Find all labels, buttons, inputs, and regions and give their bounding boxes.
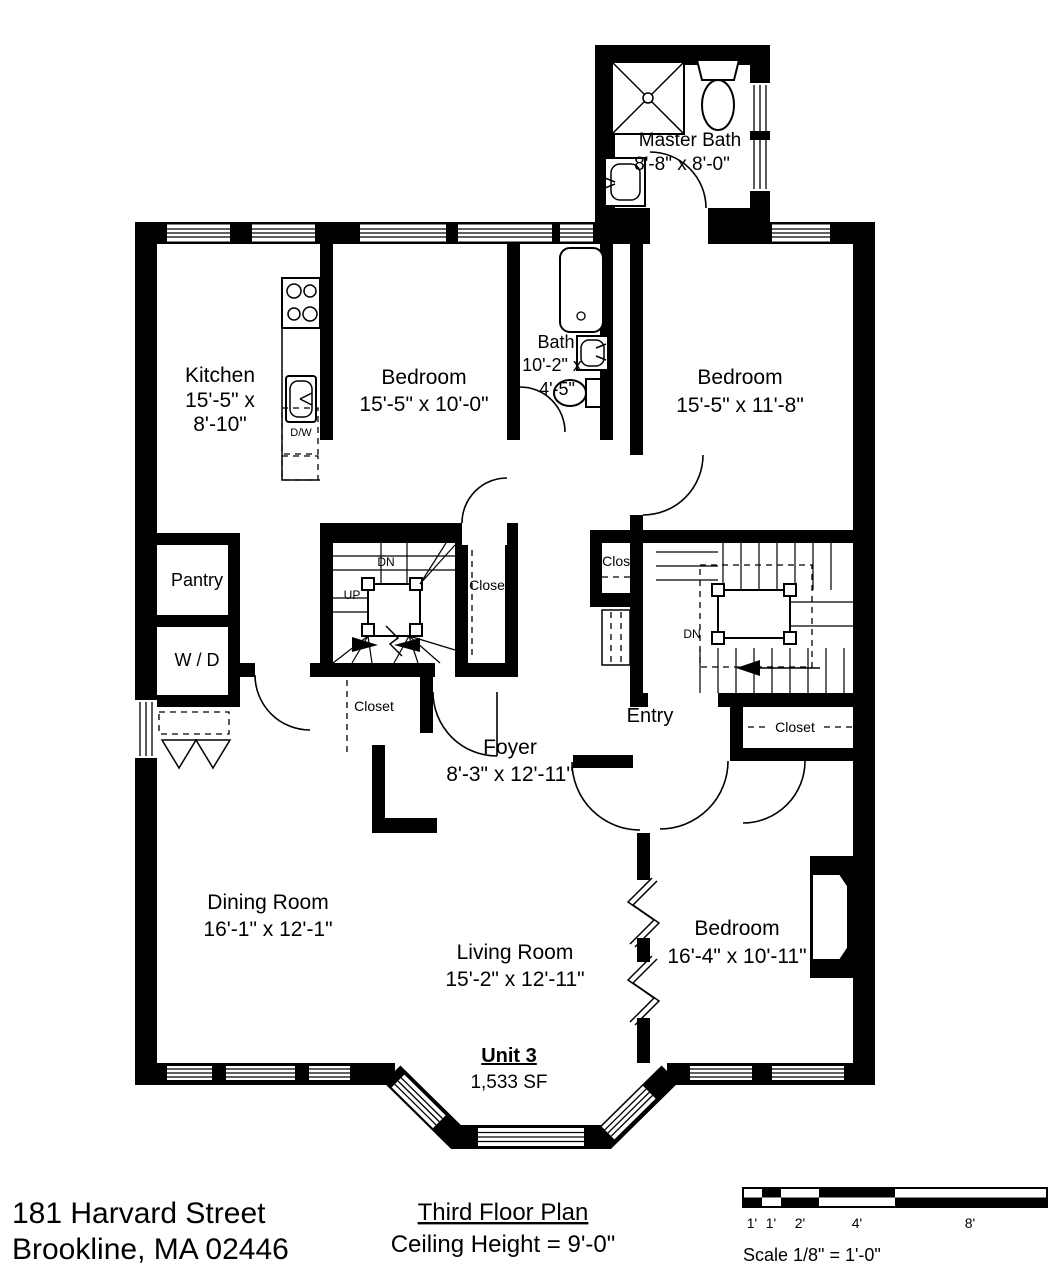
doors <box>255 152 805 830</box>
unit-area: 1,533 SF <box>470 1072 547 1093</box>
scale-label: Scale 1/8" = 1'-0" <box>743 1245 881 1265</box>
floor-plan-page: D/W <box>0 0 1061 1276</box>
sink-kitchen <box>286 376 316 422</box>
scale-tick-4: 4' <box>852 1215 862 1231</box>
scale-bar: 1' 1' 2' 4' 8' Scale 1/8" = 1'-0" <box>743 1188 1047 1265</box>
bathtub <box>560 248 603 332</box>
radiator-left <box>159 712 230 768</box>
dishwasher-label: D/W <box>290 427 312 439</box>
kitchen-dims-2: 8'-10" <box>193 413 247 436</box>
closet-label-foyer: Closet <box>354 698 394 714</box>
bedroom-right-bottom-dims: 16'-4" x 10'-11" <box>667 945 806 968</box>
master-bath-dims: 8'-8" x 8'-0" <box>634 154 730 175</box>
bedroom-top-name: Bedroom <box>381 366 466 389</box>
living-room-dims: 15'-2" x 12'-11" <box>445 968 584 991</box>
kitchen-dims-1: 15'-5" x <box>185 389 255 412</box>
stairs-right-down-label: DN <box>683 627 700 641</box>
address-line1: 181 Harvard Street <box>12 1197 266 1230</box>
laundry-name: W / D <box>175 650 220 670</box>
ceiling-height: Ceiling Height = 9'-0" <box>391 1231 616 1258</box>
hall-cabinet <box>602 610 630 665</box>
closet-label-bedroom: Closet <box>602 553 642 569</box>
footer: 181 Harvard Street Brookline, MA 02446 T… <box>12 1188 1047 1266</box>
closet-label-hall: Closet <box>469 577 509 593</box>
pantry-name: Pantry <box>171 570 223 590</box>
dining-room-dims: 16'-1" x 12'-1" <box>203 918 332 941</box>
closet-label-entry: Closet <box>775 719 815 735</box>
entry-name: Entry <box>627 705 674 727</box>
master-bath-name: Master Bath <box>639 130 741 151</box>
foyer-name: Foyer <box>483 736 537 759</box>
living-room-name: Living Room <box>457 941 574 964</box>
scale-tick-2: 1' <box>766 1215 776 1231</box>
scale-tick-1: 1' <box>747 1215 757 1231</box>
kitchen-name: Kitchen <box>185 364 255 387</box>
bath-name: Bath <box>537 332 574 352</box>
scale-tick-3: 2' <box>795 1215 805 1231</box>
bedroom-top-dims: 15'-5" x 10'-0" <box>359 393 488 416</box>
dining-room-name: Dining Room <box>207 891 328 914</box>
bedroom-right-top-name: Bedroom <box>697 366 782 389</box>
bedroom-right-top-dims: 15'-5" x 11'-8" <box>676 394 804 417</box>
unit-name: Unit 3 <box>481 1045 537 1067</box>
stove <box>282 278 320 328</box>
toilet-master <box>697 60 739 130</box>
foyer-dims: 8'-3" x 12'-11" <box>446 763 574 786</box>
scale-tick-5: 8' <box>965 1215 975 1231</box>
floor-plan-drawing: D/W <box>0 0 1061 1276</box>
plan-title: Third Floor Plan <box>418 1199 589 1226</box>
stairs-left-up-label: UP <box>344 588 361 602</box>
bath-dims-1: 10'-2" x <box>522 355 582 375</box>
stairs-right: DN <box>656 543 853 693</box>
bay-window-left <box>392 1075 446 1129</box>
shower <box>612 62 684 134</box>
stairs-left: DN UP <box>333 543 455 663</box>
bath-dims-2: 4'-5" <box>539 379 575 399</box>
address-line2: Brookline, MA 02446 <box>12 1233 289 1266</box>
stairs-left-down-label: DN <box>377 555 394 569</box>
bedroom-right-bottom-name: Bedroom <box>694 917 779 940</box>
